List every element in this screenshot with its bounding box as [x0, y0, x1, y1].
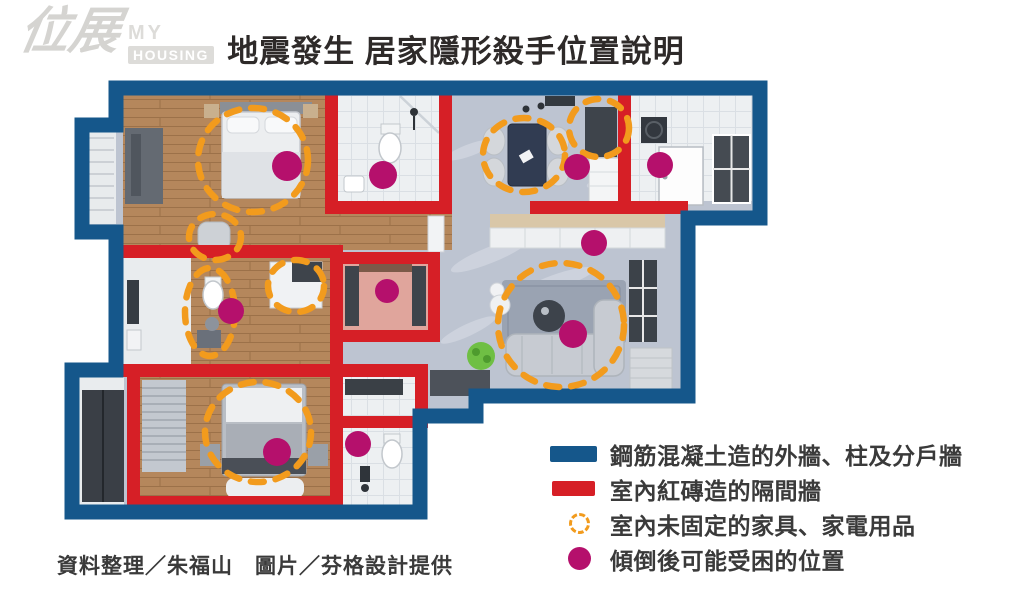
trap-location-dot: [581, 230, 607, 256]
shoe-cabinet: [428, 216, 444, 252]
kitchen-tall-cabinet: [585, 107, 617, 157]
laundry-counter: [345, 379, 403, 395]
kitchen-island-top: [490, 214, 665, 228]
legend-label-concrete-wall: 鋼筋混凝土造的外牆、柱及分戶牆: [610, 437, 963, 471]
legend-label-unfixed-furniture: 室內未固定的家具、家電用品: [610, 507, 916, 541]
pendant-lamp: [538, 103, 545, 110]
slat-blinds: [142, 380, 186, 472]
trap-location-dot: [263, 438, 291, 466]
trap-location-dot: [218, 298, 244, 324]
vanity: [127, 330, 141, 350]
kitchen-island-front: [490, 228, 665, 248]
toilet: [382, 440, 402, 468]
storage-cabinet-left: [345, 266, 359, 326]
trap-location-dot: [272, 151, 302, 181]
legend-item-concrete-wall: 鋼筋混凝土造的外牆、柱及分戶牆: [548, 436, 963, 471]
trap-location-dot: [559, 320, 587, 348]
infographic-page: 位展 MY HOUSING 地震發生 居家隱形殺手位置說明 鋼筋混凝土造的外牆、…: [0, 0, 1024, 610]
pillow: [227, 117, 259, 133]
storage-shelf: [359, 264, 412, 272]
washing-machine: [641, 117, 667, 143]
legend-label-brick-wall: 室內紅磚造的隔間牆: [610, 472, 822, 506]
brick-wall-swatch: [552, 481, 595, 496]
concrete-wall-swatch: [550, 446, 597, 462]
trap-location-dot: [375, 279, 399, 303]
plant: [467, 342, 495, 370]
legend-item-trap-position: 傾倒後可能受困的位置: [548, 541, 963, 576]
desk-chair: [205, 317, 219, 331]
unfixed-furniture-swatch: [569, 513, 590, 534]
laundry-fixtures: [345, 379, 403, 395]
fridge: [589, 158, 619, 202]
trap-location-dot: [369, 161, 397, 189]
shower-panel: [127, 280, 139, 324]
pendant-lamp: [523, 106, 530, 113]
trap-location-dot: [345, 431, 371, 457]
legend-item-unfixed-furniture: 室內未固定的家具、家電用品: [548, 506, 963, 541]
pillow: [265, 117, 297, 133]
window-bench: [630, 348, 672, 390]
trap-position-swatch: [568, 547, 591, 570]
storage-cabinet-right: [412, 266, 426, 326]
water-heater: [360, 466, 370, 482]
trap-location-dot: [564, 154, 590, 180]
legend: 鋼筋混凝土造的外牆、柱及分戶牆 室內紅磚造的隔間牆 室內未固定的家具、家電用品 …: [548, 436, 963, 576]
range-hood: [545, 96, 575, 106]
nightstand-left: [204, 104, 219, 118]
page-title: 地震發生 居家隱形殺手位置說明: [0, 26, 912, 71]
shower-head: [410, 108, 418, 116]
coffee-table: [533, 300, 565, 332]
sink: [344, 176, 364, 192]
legend-item-brick-wall: 室內紅磚造的隔間牆: [548, 471, 963, 506]
desk: [197, 330, 221, 348]
credits: 資料整理／朱福山 圖片／芬格設計提供: [57, 550, 453, 580]
wardrobe: [125, 128, 163, 204]
legend-label-trap-position: 傾倒後可能受困的位置: [610, 542, 845, 576]
footboard: [222, 458, 306, 474]
toilet: [379, 133, 401, 163]
nightstand-right: [303, 104, 318, 118]
trap-location-dot: [647, 152, 673, 178]
